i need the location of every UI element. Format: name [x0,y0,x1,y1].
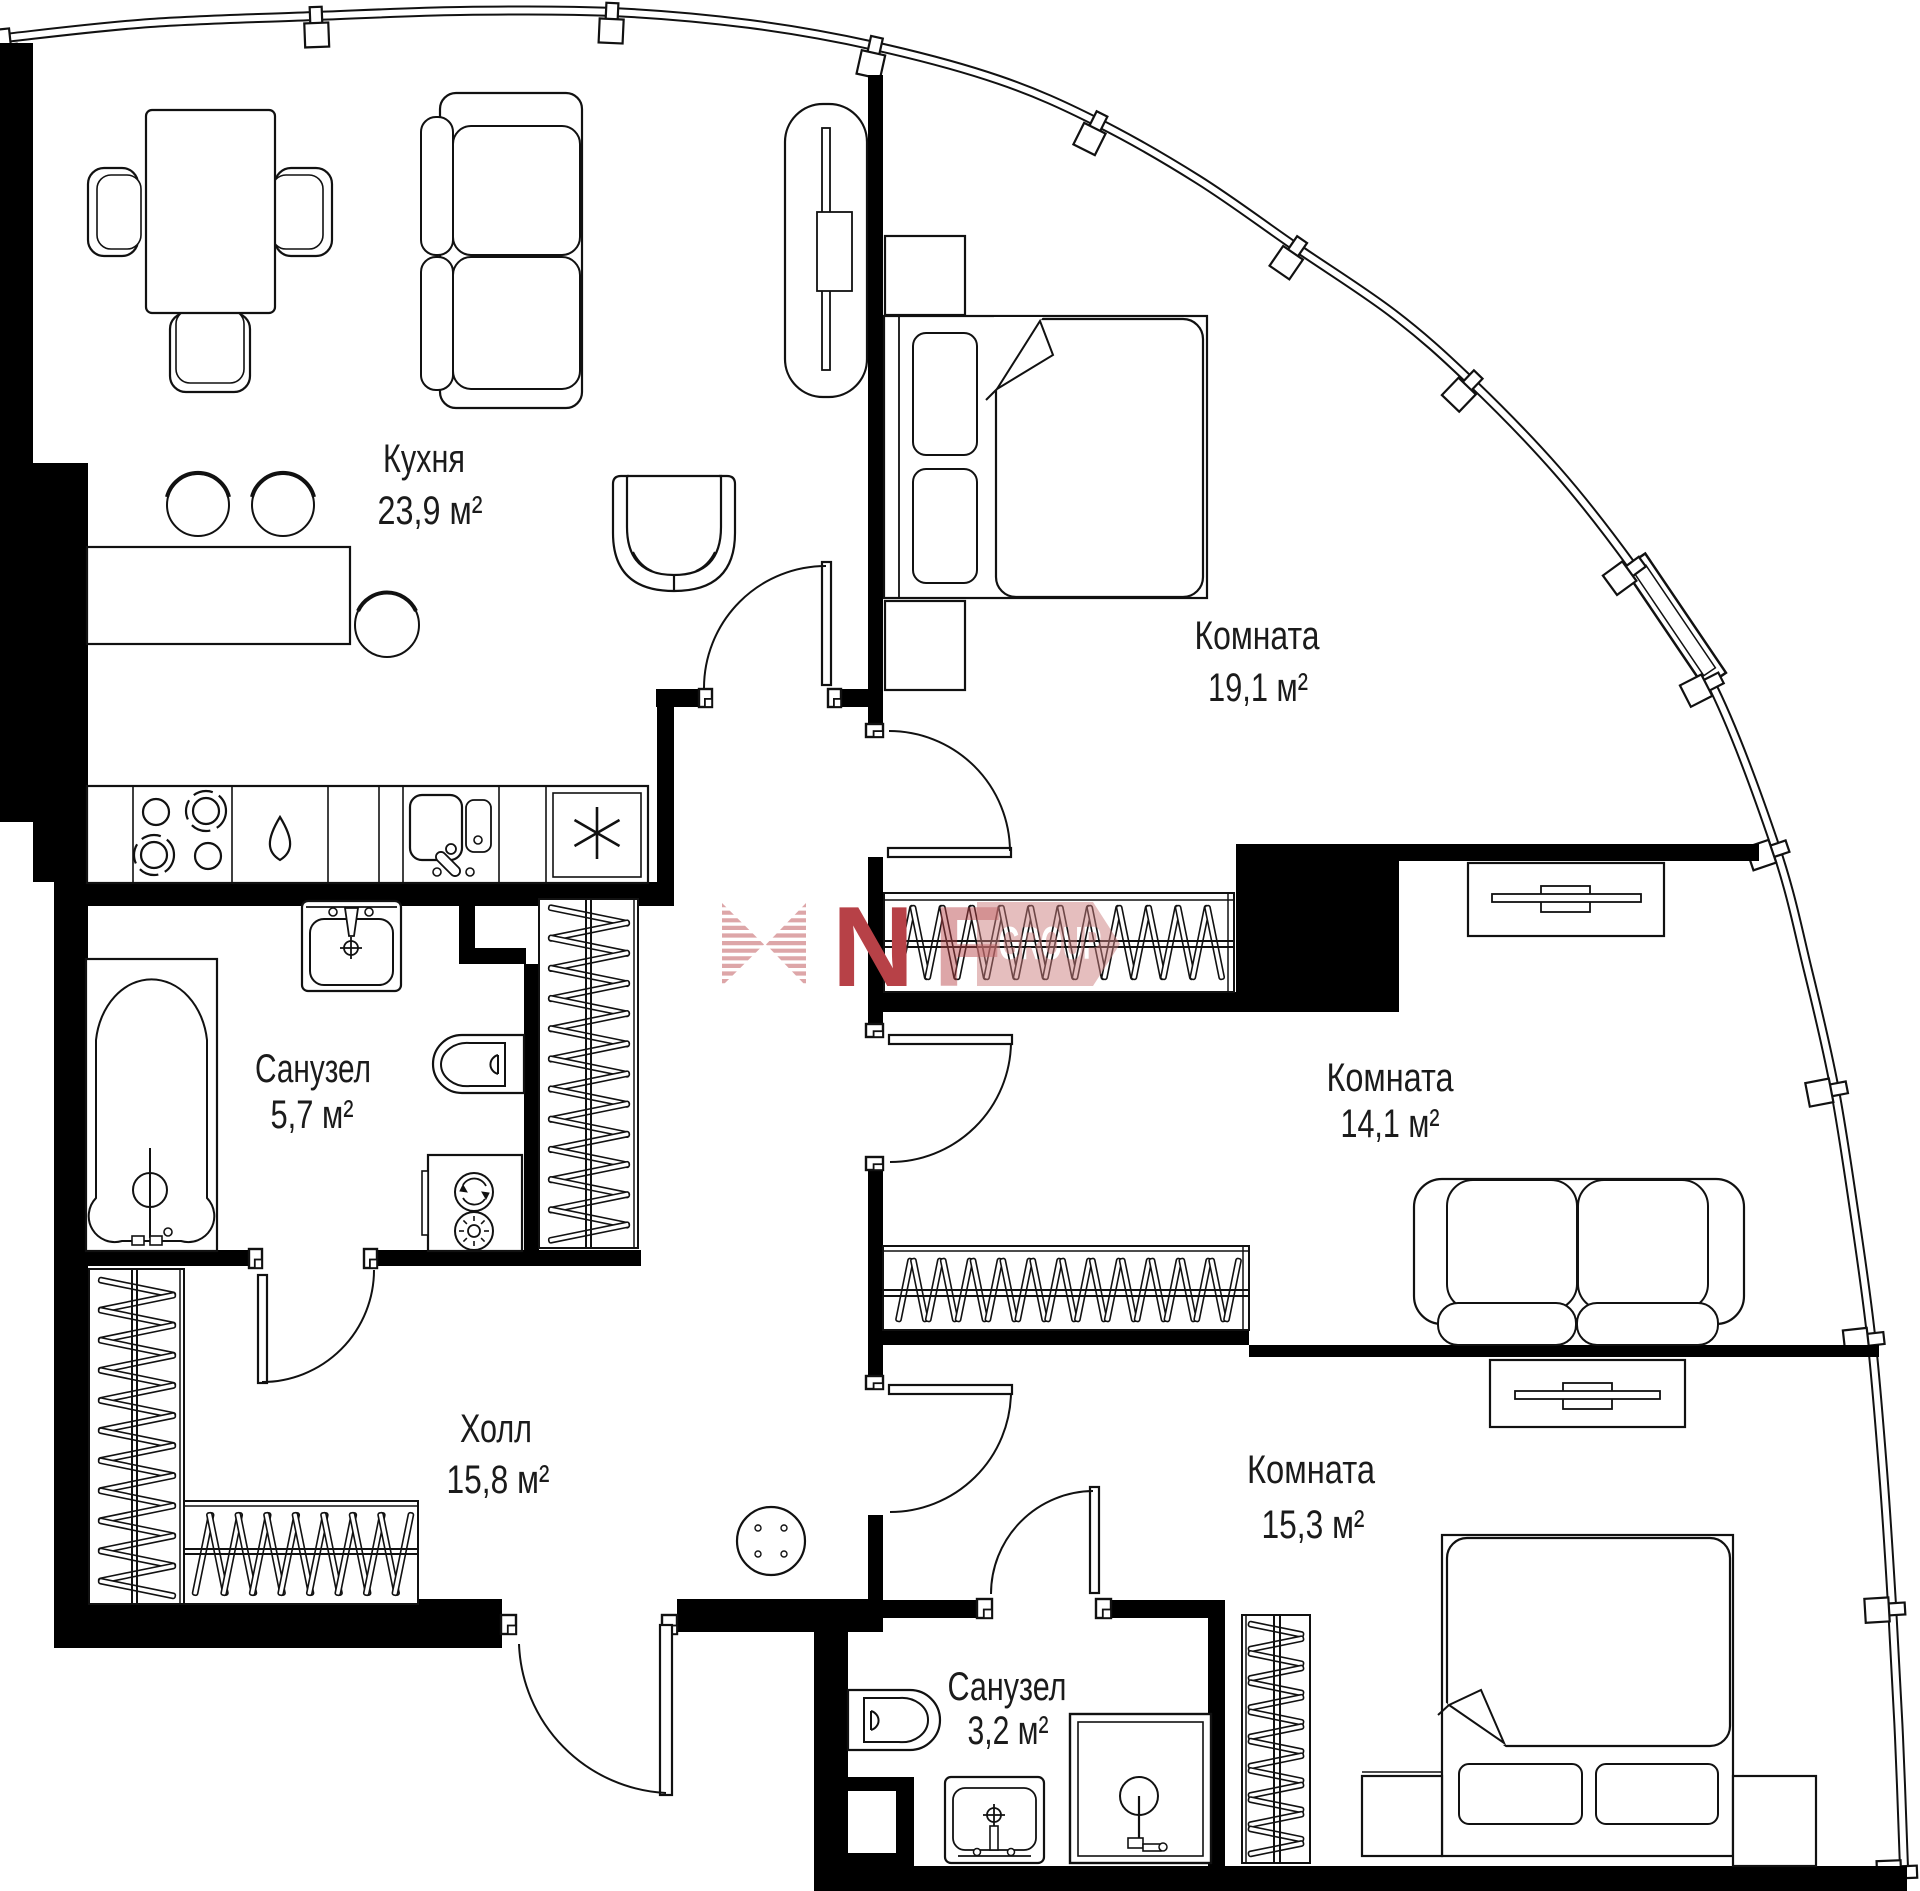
svg-text:Кухня: Кухня [383,437,465,481]
svg-text:Комната: Комната [1247,1448,1376,1492]
svg-text:Санузел: Санузел [255,1047,371,1091]
svg-text:Холл: Холл [460,1407,532,1451]
svg-text:15,8 м²: 15,8 м² [447,1458,550,1502]
svg-text:Комната: Комната [1327,1056,1455,1100]
svg-text:N: N [832,884,914,1011]
svg-text:14,1 м²: 14,1 м² [1341,1102,1440,1146]
svg-text:Комната: Комната [1195,614,1321,658]
svg-text:19,1 м²: 19,1 м² [1208,666,1308,710]
svg-text:Санузел: Санузел [948,1665,1067,1709]
svg-text:5,7 м²: 5,7 м² [271,1093,354,1137]
svg-text:15,3 м²: 15,3 м² [1262,1503,1365,1547]
svg-text:23,9 м²: 23,9 м² [378,489,483,533]
svg-text:3,2 м²: 3,2 м² [968,1709,1049,1753]
